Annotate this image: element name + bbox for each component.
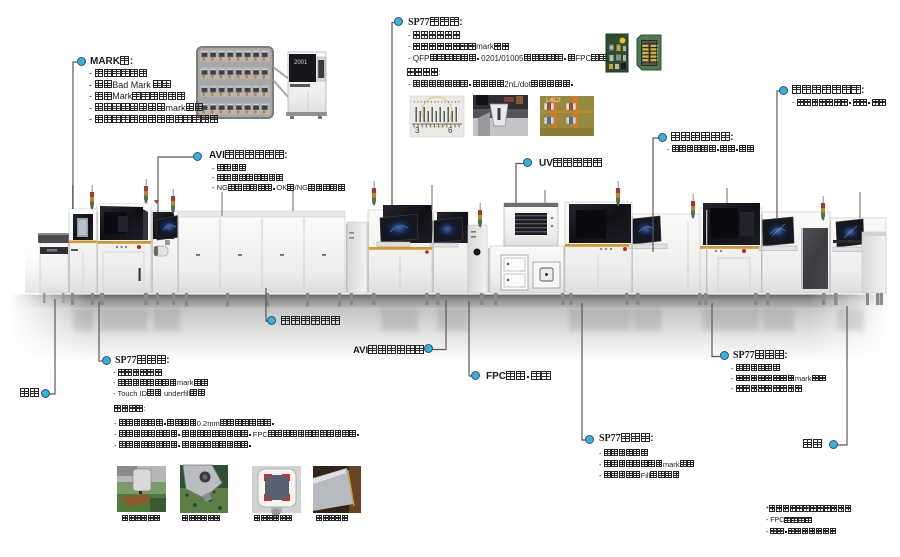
svg-text:3: 3 [415,126,420,135]
svg-text:6: 6 [448,126,453,135]
svg-text:2001: 2001 [294,60,308,66]
svg-text:L4L2: L4L2 [546,97,561,104]
